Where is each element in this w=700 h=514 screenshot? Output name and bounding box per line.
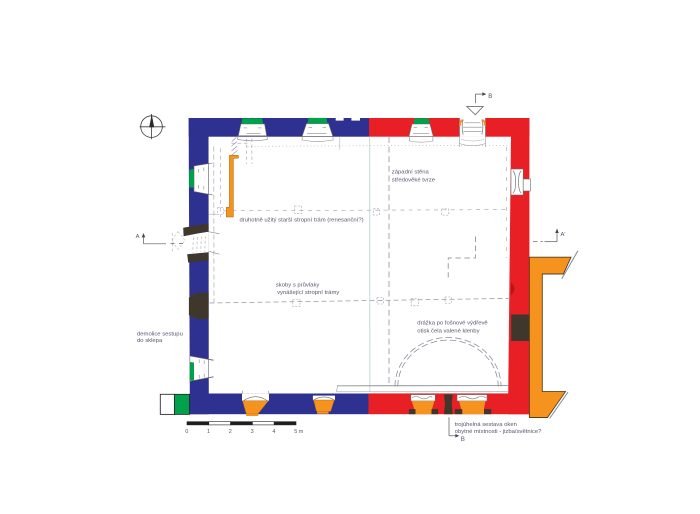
svg-text:obytné místnosti - jizba/světn: obytné místnosti - jizba/světnice? <box>455 429 542 435</box>
svg-text:A': A' <box>561 232 566 238</box>
svg-text:A: A <box>136 234 140 240</box>
svg-text:středověké tvrze: středověké tvrze <box>392 178 436 184</box>
svg-text:3: 3 <box>251 429 254 435</box>
svg-text:B: B <box>488 93 492 100</box>
svg-text:B: B <box>461 436 465 443</box>
svg-text:demolice sestupu: demolice sestupu <box>137 331 183 337</box>
svg-text:4: 4 <box>272 429 275 435</box>
svg-text:0: 0 <box>185 429 188 435</box>
svg-text:západní stěna: západní stěna <box>392 170 430 176</box>
svg-text:drážka po fošnové výdřevě: drážka po fošnové výdřevě <box>417 321 488 327</box>
svg-text:vynášející stropní trámy: vynášející stropní trámy <box>277 290 339 296</box>
svg-text:skoby s průvlaky: skoby s průvlaky <box>276 281 320 288</box>
svg-text:druhotně užitý starší stropní: druhotně užitý starší stropní trám (rene… <box>240 218 364 224</box>
svg-text:otisk čela valené klenby: otisk čela valené klenby <box>417 329 479 335</box>
svg-text:do sklepa: do sklepa <box>137 338 163 344</box>
svg-text:1: 1 <box>207 429 210 435</box>
svg-text:2: 2 <box>229 429 232 435</box>
svg-text:trojúhelná sestava oken: trojúhelná sestava oken <box>455 422 517 428</box>
svg-text:5 m: 5 m <box>294 429 304 435</box>
